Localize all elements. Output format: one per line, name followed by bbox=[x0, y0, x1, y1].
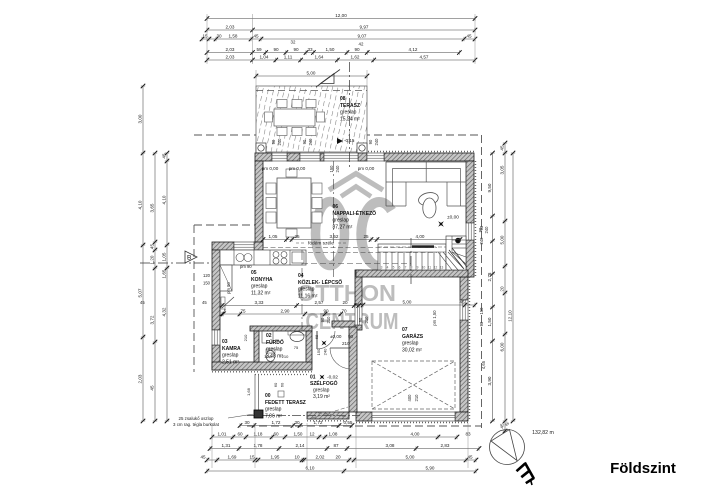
svg-text:45: 45 bbox=[499, 145, 504, 151]
svg-text:KÖZLEK- LÉPCSŐ: KÖZLEK- LÉPCSŐ bbox=[298, 278, 342, 286]
svg-text:120: 120 bbox=[203, 273, 211, 278]
svg-text:NAPPALI-ÉTKEZŐ: NAPPALI-ÉTKEZŐ bbox=[333, 209, 377, 217]
svg-text:4,12: 4,12 bbox=[409, 47, 418, 52]
svg-text:2,57: 2,57 bbox=[315, 300, 324, 305]
svg-text:45: 45 bbox=[253, 33, 259, 38]
svg-text:5,00: 5,00 bbox=[403, 299, 412, 304]
svg-text:75: 75 bbox=[240, 308, 246, 313]
svg-text:45: 45 bbox=[149, 385, 154, 391]
svg-text:greslap: greslap bbox=[313, 388, 330, 394]
svg-text:Földszint: Földszint bbox=[610, 460, 676, 477]
svg-text:210: 210 bbox=[243, 334, 248, 341]
svg-text:15: 15 bbox=[249, 454, 255, 459]
svg-text:132,82 m: 132,82 m bbox=[532, 430, 554, 436]
svg-text:45: 45 bbox=[202, 300, 207, 305]
svg-text:13: 13 bbox=[440, 266, 444, 270]
svg-text:3: 3 bbox=[381, 266, 383, 270]
svg-text:12: 12 bbox=[309, 431, 315, 436]
svg-text:210: 210 bbox=[326, 316, 331, 324]
svg-text:2,78: 2,78 bbox=[487, 272, 492, 281]
svg-text:90: 90 bbox=[479, 225, 484, 230]
svg-text:B: B bbox=[187, 255, 191, 262]
svg-text:4,10: 4,10 bbox=[161, 195, 166, 204]
svg-text:3,08: 3,08 bbox=[386, 443, 395, 448]
svg-text:210: 210 bbox=[414, 394, 419, 402]
svg-text:240: 240 bbox=[335, 165, 340, 173]
svg-text:25 zsalukő oszlop: 25 zsalukő oszlop bbox=[179, 416, 214, 421]
svg-text:150: 150 bbox=[329, 165, 334, 173]
svg-text:5,90: 5,90 bbox=[426, 465, 435, 470]
svg-text:2,83: 2,83 bbox=[441, 443, 450, 448]
svg-text:87: 87 bbox=[333, 443, 339, 448]
svg-text:7: 7 bbox=[405, 266, 407, 270]
svg-text:KAMRA: KAMRA bbox=[222, 346, 241, 352]
svg-text:150: 150 bbox=[479, 307, 484, 315]
svg-text:12,10: 12,10 bbox=[507, 310, 512, 322]
svg-text:3,33: 3,33 bbox=[255, 300, 264, 305]
svg-text:4,57: 4,57 bbox=[420, 54, 429, 59]
svg-text:400: 400 bbox=[407, 394, 412, 402]
svg-text:210: 210 bbox=[364, 316, 369, 324]
svg-text:07: 07 bbox=[402, 327, 408, 333]
svg-text:12: 12 bbox=[434, 266, 438, 270]
svg-text:75: 75 bbox=[294, 345, 299, 350]
svg-text:45: 45 bbox=[467, 454, 473, 459]
svg-text:90: 90 bbox=[348, 334, 354, 339]
svg-text:5,00: 5,00 bbox=[499, 235, 504, 244]
svg-text:30,02 m²: 30,02 m² bbox=[402, 347, 422, 353]
svg-text:1,20: 1,20 bbox=[149, 255, 154, 264]
svg-text:90: 90 bbox=[479, 321, 484, 326]
svg-text:210: 210 bbox=[342, 341, 350, 346]
svg-text:25: 25 bbox=[294, 234, 300, 239]
svg-text:02: 02 bbox=[266, 333, 272, 339]
svg-text:10: 10 bbox=[294, 454, 300, 459]
svg-text:1,04: 1,04 bbox=[260, 54, 269, 59]
svg-text:3,65: 3,65 bbox=[149, 203, 154, 212]
svg-text:33: 33 bbox=[307, 47, 313, 52]
svg-text:83: 83 bbox=[465, 431, 471, 436]
svg-text:greslap: greslap bbox=[333, 218, 350, 224]
svg-text:59: 59 bbox=[256, 47, 262, 52]
svg-text:210: 210 bbox=[282, 354, 289, 359]
svg-text:1,11: 1,11 bbox=[284, 54, 293, 59]
svg-text:greslap: greslap bbox=[222, 353, 239, 359]
svg-text:08: 08 bbox=[340, 96, 346, 102]
svg-text:greslap: greslap bbox=[402, 341, 419, 347]
svg-text:8: 8 bbox=[411, 266, 413, 270]
svg-text:20: 20 bbox=[342, 300, 348, 305]
svg-text:2,51 m²: 2,51 m² bbox=[222, 359, 239, 365]
svg-text:GARÁZS: GARÁZS bbox=[402, 333, 424, 340]
svg-text:90: 90 bbox=[271, 139, 276, 144]
svg-text:1,95: 1,95 bbox=[271, 454, 280, 459]
svg-text:240: 240 bbox=[323, 348, 328, 355]
svg-text:90: 90 bbox=[358, 317, 363, 322]
svg-text:00: 00 bbox=[265, 393, 271, 399]
svg-text:68: 68 bbox=[314, 334, 319, 339]
svg-text:3,19 m²: 3,19 m² bbox=[313, 394, 330, 400]
svg-text:greslap: greslap bbox=[266, 347, 283, 353]
svg-text:6,00: 6,00 bbox=[499, 342, 504, 351]
svg-text:2,14: 2,14 bbox=[296, 443, 305, 448]
svg-text:1,58: 1,58 bbox=[229, 33, 238, 38]
svg-text:3,05: 3,05 bbox=[499, 165, 504, 174]
svg-text:1,64: 1,64 bbox=[315, 54, 324, 59]
svg-text:4,10: 4,10 bbox=[137, 200, 142, 209]
svg-text:9,97: 9,97 bbox=[360, 24, 369, 29]
svg-text:pm 1,50: pm 1,50 bbox=[432, 310, 437, 326]
svg-text:pm 0,00: pm 0,00 bbox=[358, 166, 375, 171]
svg-text:SZÉLFOGÓ: SZÉLFOGÓ bbox=[310, 379, 338, 387]
svg-text:90: 90 bbox=[302, 139, 307, 144]
svg-text:90: 90 bbox=[273, 47, 279, 52]
svg-text:1,05: 1,05 bbox=[161, 252, 166, 261]
svg-text:födém széle: födém széle bbox=[308, 241, 334, 247]
svg-text:3 cm rag. tégla burkolat: 3 cm rag. tégla burkolat bbox=[173, 422, 220, 427]
svg-text:5,07: 5,07 bbox=[137, 288, 142, 297]
svg-text:75: 75 bbox=[275, 338, 280, 343]
svg-text:12,00: 12,00 bbox=[335, 13, 347, 18]
svg-text:45: 45 bbox=[466, 33, 472, 38]
svg-text:pm 90: pm 90 bbox=[240, 264, 252, 269]
svg-text:90: 90 bbox=[293, 47, 299, 52]
svg-text:45: 45 bbox=[459, 299, 465, 304]
svg-text:240: 240 bbox=[308, 138, 313, 146]
svg-text:10: 10 bbox=[422, 266, 426, 270]
svg-text:4,32: 4,32 bbox=[161, 307, 166, 316]
svg-text:2,02: 2,02 bbox=[316, 454, 325, 459]
svg-text:5,00: 5,00 bbox=[406, 454, 415, 459]
svg-text:1,68: 1,68 bbox=[246, 387, 251, 396]
svg-text:1,50: 1,50 bbox=[264, 354, 273, 359]
svg-text:pm 0,00: pm 0,00 bbox=[289, 166, 306, 171]
svg-text:15,24 m²: 15,24 m² bbox=[340, 116, 360, 122]
svg-text:70: 70 bbox=[341, 308, 347, 313]
svg-text:30: 30 bbox=[216, 33, 222, 38]
svg-text:3,52: 3,52 bbox=[330, 234, 339, 239]
svg-text:2,03: 2,03 bbox=[226, 54, 235, 59]
svg-text:1,31: 1,31 bbox=[222, 443, 231, 448]
svg-text:04: 04 bbox=[298, 273, 304, 279]
svg-text:20: 20 bbox=[499, 286, 504, 292]
svg-text:11,16 m²: 11,16 m² bbox=[298, 293, 318, 299]
svg-text:greslap: greslap bbox=[340, 110, 357, 116]
svg-text:5: 5 bbox=[393, 266, 395, 270]
svg-text:9: 9 bbox=[417, 266, 419, 270]
svg-text:240: 240 bbox=[484, 226, 489, 234]
svg-text:1,72: 1,72 bbox=[314, 420, 323, 425]
svg-text:-0,02: -0,02 bbox=[327, 375, 338, 381]
svg-text:1,08: 1,08 bbox=[329, 431, 338, 436]
svg-text:±0,00: ±0,00 bbox=[330, 334, 342, 339]
svg-text:90: 90 bbox=[368, 139, 373, 144]
svg-text:KONYHA: KONYHA bbox=[251, 277, 273, 283]
svg-text:240: 240 bbox=[277, 138, 282, 146]
svg-text:60: 60 bbox=[273, 431, 279, 436]
svg-text:1,50: 1,50 bbox=[294, 431, 303, 436]
svg-text:11: 11 bbox=[428, 266, 432, 270]
svg-text:45: 45 bbox=[149, 244, 154, 250]
svg-text:greslap: greslap bbox=[251, 284, 268, 290]
svg-text:1,05: 1,05 bbox=[269, 234, 278, 239]
svg-text:2,90: 2,90 bbox=[281, 308, 290, 313]
svg-text:2,03: 2,03 bbox=[226, 47, 235, 52]
svg-text:1,62: 1,62 bbox=[351, 54, 360, 59]
svg-text:60: 60 bbox=[280, 382, 285, 387]
svg-text:pm 0,00: pm 0,00 bbox=[262, 166, 279, 171]
svg-text:240: 240 bbox=[374, 138, 379, 146]
svg-text:4,00: 4,00 bbox=[411, 431, 420, 436]
svg-text:25: 25 bbox=[363, 234, 369, 239]
svg-text:±0,00: ±0,00 bbox=[447, 215, 459, 221]
svg-text:11,32 m²: 11,32 m² bbox=[251, 290, 271, 296]
svg-text:42: 42 bbox=[359, 42, 364, 47]
svg-text:1,72: 1,72 bbox=[272, 420, 281, 425]
svg-text:45: 45 bbox=[200, 454, 206, 459]
svg-text:45: 45 bbox=[161, 153, 166, 159]
svg-text:6: 6 bbox=[399, 266, 401, 270]
svg-text:87,27 m²: 87,27 m² bbox=[333, 224, 353, 230]
svg-text:1,50: 1,50 bbox=[487, 317, 492, 326]
svg-text:5: 5 bbox=[224, 308, 227, 313]
svg-text:30: 30 bbox=[294, 420, 300, 425]
svg-text:5,00: 5,00 bbox=[307, 70, 316, 75]
svg-text:4: 4 bbox=[387, 266, 389, 270]
svg-text:greslap: greslap bbox=[298, 287, 315, 293]
svg-text:7,06 m²: 7,06 m² bbox=[265, 413, 282, 419]
svg-text:90: 90 bbox=[320, 317, 325, 322]
svg-text:0,55: 0,55 bbox=[344, 420, 353, 425]
svg-text:1,65: 1,65 bbox=[161, 269, 166, 278]
svg-text:240: 240 bbox=[479, 237, 484, 245]
svg-text:TERASZ: TERASZ bbox=[340, 103, 360, 109]
svg-text:greslap: greslap bbox=[265, 407, 282, 413]
svg-text:pm 90: pm 90 bbox=[226, 282, 231, 294]
svg-text:60: 60 bbox=[273, 382, 278, 387]
svg-text:FEDETT TERASZ: FEDETT TERASZ bbox=[265, 400, 306, 406]
svg-text:01: 01 bbox=[310, 375, 316, 381]
svg-text:2,03: 2,03 bbox=[137, 374, 142, 383]
svg-text:20: 20 bbox=[335, 454, 341, 459]
svg-text:2,03: 2,03 bbox=[226, 24, 235, 29]
svg-text:06: 06 bbox=[333, 204, 339, 210]
svg-text:4,65: 4,65 bbox=[481, 360, 486, 369]
svg-text:60: 60 bbox=[237, 431, 243, 436]
svg-text:9,50: 9,50 bbox=[487, 183, 492, 192]
svg-text:3,72: 3,72 bbox=[149, 315, 154, 324]
svg-text:05: 05 bbox=[251, 270, 257, 276]
svg-text:3,90: 3,90 bbox=[487, 376, 492, 385]
svg-text:1,50: 1,50 bbox=[326, 47, 335, 52]
svg-text:1,69: 1,69 bbox=[228, 454, 237, 459]
svg-text:9,07: 9,07 bbox=[358, 33, 367, 38]
svg-text:90: 90 bbox=[354, 47, 360, 52]
svg-text:32: 32 bbox=[291, 40, 296, 45]
svg-text:4,00: 4,00 bbox=[416, 234, 425, 239]
svg-text:30: 30 bbox=[244, 420, 250, 425]
svg-text:1,01: 1,01 bbox=[218, 431, 227, 436]
svg-text:45: 45 bbox=[140, 300, 145, 305]
svg-text:-0,15: -0,15 bbox=[344, 138, 355, 143]
svg-text:03: 03 bbox=[222, 339, 228, 345]
svg-text:90: 90 bbox=[323, 308, 329, 313]
svg-text:3,00: 3,00 bbox=[137, 114, 142, 123]
svg-text:150: 150 bbox=[203, 281, 211, 286]
svg-text:150: 150 bbox=[316, 348, 321, 355]
